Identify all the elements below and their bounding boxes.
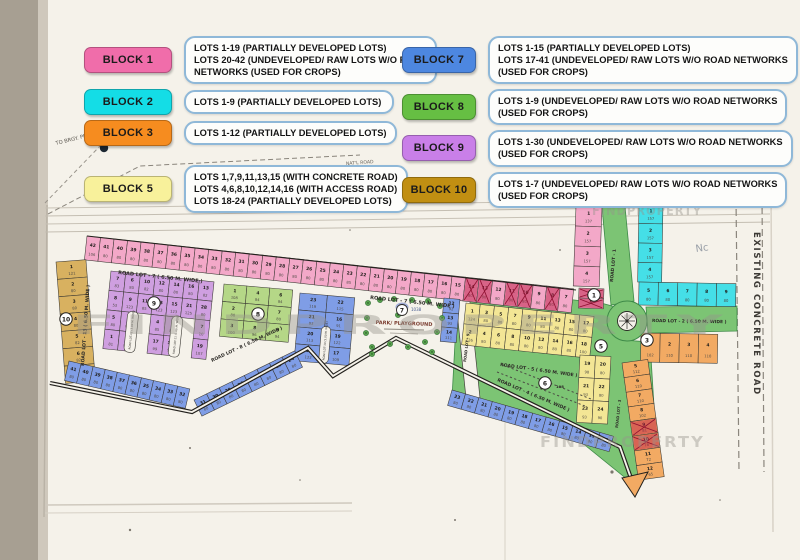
- lot-number: 21: [583, 383, 589, 389]
- lot-number: 8: [114, 295, 118, 301]
- lot-number: 4: [706, 342, 709, 348]
- lot-number: 16: [188, 283, 195, 290]
- lot-number: 21: [373, 273, 380, 280]
- lot-number: 39: [130, 247, 137, 254]
- subdivision-map: NAT'L ROAD TO BRGY. PROPER NAT'L ROAD EX…: [0, 0, 800, 560]
- strip-block-1: 1137215731574157: [573, 206, 602, 287]
- lot-number: 24: [597, 406, 603, 412]
- barangay-direction: TO BRGY. PROPER NAT'L ROAD: [45, 130, 374, 214]
- lot-number: 42: [89, 242, 96, 249]
- lot-number: 1: [233, 288, 237, 294]
- lot-area: 157: [584, 239, 592, 243]
- lot-number: 14: [173, 282, 180, 289]
- lot-area: 110: [704, 354, 712, 358]
- lot-area: 106: [88, 252, 96, 257]
- lot-area: 82: [203, 293, 208, 297]
- lot-number: 5: [647, 288, 650, 294]
- lot-area: 102: [647, 353, 654, 357]
- lot-number: 4: [648, 267, 651, 273]
- lot-number: 33: [211, 256, 218, 263]
- lot-number: 9: [725, 289, 728, 295]
- lot-number: 3: [586, 251, 589, 257]
- lot-area: 72: [646, 458, 651, 463]
- lot-area: 119: [309, 304, 317, 309]
- lot-number: 18: [581, 341, 588, 348]
- lot-number: 2: [668, 342, 671, 348]
- lot-number: 20: [387, 275, 394, 282]
- lot-number: 18: [414, 278, 421, 285]
- lot-number: 6: [77, 351, 81, 357]
- lot-area: 82: [75, 341, 80, 345]
- lot-number: 26: [306, 266, 313, 273]
- lot-number: 7: [686, 288, 689, 294]
- lot-area: 80: [685, 298, 690, 302]
- lot-number: 13: [203, 285, 210, 292]
- lot-area: 157: [647, 256, 655, 260]
- lot-area: 80: [600, 371, 606, 375]
- svg-text:9: 9: [152, 300, 156, 307]
- lot-number: 19: [400, 276, 407, 283]
- location-pin: [100, 144, 108, 152]
- lot-number: 2: [586, 231, 589, 237]
- lot-number: 6: [279, 292, 283, 298]
- svg-text:5: 5: [599, 343, 603, 350]
- watermark-bottom-right: FINDPROPERTY: [540, 433, 705, 451]
- lot-number: 10: [144, 279, 151, 286]
- lot-number: 6: [130, 277, 134, 283]
- lot-number: 23: [310, 297, 317, 304]
- lot-number: 3: [72, 299, 76, 305]
- lot-area: 137: [585, 219, 593, 223]
- lot-area: 122: [304, 355, 311, 360]
- lot-number: 6: [666, 288, 669, 294]
- circle-block6: 6: [539, 377, 551, 389]
- lot-number: 15: [454, 282, 461, 289]
- lot-number: 12: [158, 280, 165, 287]
- lot-number: 17: [333, 350, 340, 357]
- lot-number: 40: [116, 245, 123, 252]
- circle-block10: 10: [60, 313, 72, 325]
- lot-area: 121: [68, 271, 75, 276]
- lot-number: 37: [157, 250, 164, 257]
- lot-number: 22: [337, 299, 344, 306]
- lot-area: 110: [685, 354, 693, 358]
- lot-number: 34: [198, 254, 205, 261]
- watermark-center: FINDPROPERTY: [72, 310, 732, 341]
- strip-block-7: 4180408039803880378036803580348033803280: [65, 361, 190, 408]
- lot-area: 123: [126, 305, 134, 310]
- lot-area: 80: [599, 394, 605, 398]
- lot-number: 25: [319, 267, 326, 274]
- national-road-label-left: NAT'L ROAD: [346, 159, 375, 167]
- lot-area: 93: [582, 415, 588, 419]
- lot-number: 31: [238, 259, 245, 266]
- lot-area: 157: [583, 259, 591, 263]
- access-area-label: 108: [556, 384, 564, 389]
- lot-area: 108: [231, 296, 239, 301]
- lot-number: 4: [256, 290, 260, 296]
- lot-area: 81: [108, 342, 113, 346]
- lot-area: 93: [583, 393, 589, 397]
- lot-area: 157: [583, 279, 591, 283]
- lot-number: 8: [705, 289, 708, 295]
- lot-area: 157: [647, 236, 655, 240]
- lot-area: 109: [332, 358, 340, 363]
- lot-number: 41: [103, 244, 110, 251]
- lot-number: 29: [265, 262, 272, 269]
- lot-number: 32: [225, 257, 232, 264]
- lot-number: 19: [584, 361, 590, 367]
- lot-number: 36: [171, 251, 178, 258]
- lot-number: 9: [537, 291, 541, 297]
- strip-block-5: 199820802193228023932490: [576, 355, 610, 424]
- strip-block-2: 580680780880980: [639, 282, 736, 307]
- national-road-label: NAT'L ROAD: [645, 184, 702, 192]
- circle-block5: 5: [595, 340, 607, 352]
- lot-number: 7: [564, 294, 568, 300]
- lot-number: 3: [649, 247, 652, 253]
- existing-concrete-road-label: EXISTING CONCRETE ROAD: [751, 232, 761, 396]
- lot-area: 110: [666, 354, 674, 358]
- lot-number: 30: [252, 260, 259, 267]
- lot-number: 19: [196, 343, 203, 350]
- watermark-top-right: FINDPROPERTY: [592, 204, 702, 218]
- lot-number: 27: [292, 264, 299, 271]
- lot-number: 4: [585, 271, 588, 277]
- lot-number: 2: [649, 228, 652, 234]
- lot-number: 24: [333, 269, 340, 276]
- lot-number: 1: [587, 211, 590, 217]
- lot-number: 16: [441, 281, 448, 288]
- lot-area: 80: [704, 299, 709, 303]
- lot-number: 3: [687, 342, 690, 348]
- lot-number: 22: [360, 272, 367, 279]
- lot-area: 80: [646, 298, 651, 302]
- svg-text:10: 10: [62, 316, 70, 323]
- lot-number: 15: [171, 301, 178, 308]
- lot-number: 22: [598, 384, 604, 390]
- svg-text:1: 1: [592, 292, 596, 299]
- lot-number: 23: [346, 270, 353, 277]
- to-proper-label: TO BRGY. PROPER: [54, 130, 102, 147]
- lot-number: 9: [128, 297, 132, 303]
- lot-number: 38: [143, 248, 150, 255]
- svg-text:6: 6: [543, 380, 547, 387]
- lot-number: 35: [184, 253, 191, 260]
- lot-area: 80: [724, 299, 729, 303]
- lot-area: 90: [598, 416, 604, 420]
- lot-number: 7: [116, 276, 120, 282]
- existing-concrete-road: EXISTING CONCRETE ROAD: [736, 196, 764, 472]
- lot-area: 107: [195, 351, 203, 356]
- lot-number: 1: [70, 264, 74, 270]
- lot-number: 2: [71, 281, 75, 287]
- lot-area: 122: [333, 341, 340, 346]
- lot-number: 20: [600, 361, 606, 367]
- lot-area: 100: [579, 350, 587, 355]
- pencil-note: Nc: [695, 242, 709, 255]
- circle-block9: 9: [148, 297, 160, 309]
- lot-area: 157: [646, 275, 654, 279]
- lot-area: 98: [584, 370, 590, 374]
- lot-area: 80: [665, 298, 670, 302]
- lot-number: 21: [186, 303, 193, 310]
- lot-number: 12: [495, 287, 502, 294]
- lot-number: 17: [427, 279, 434, 286]
- lot-number: 23: [582, 406, 588, 412]
- lot-area: 82: [144, 287, 149, 291]
- lot-number: 28: [279, 263, 286, 270]
- circle-block1: 1: [588, 289, 600, 301]
